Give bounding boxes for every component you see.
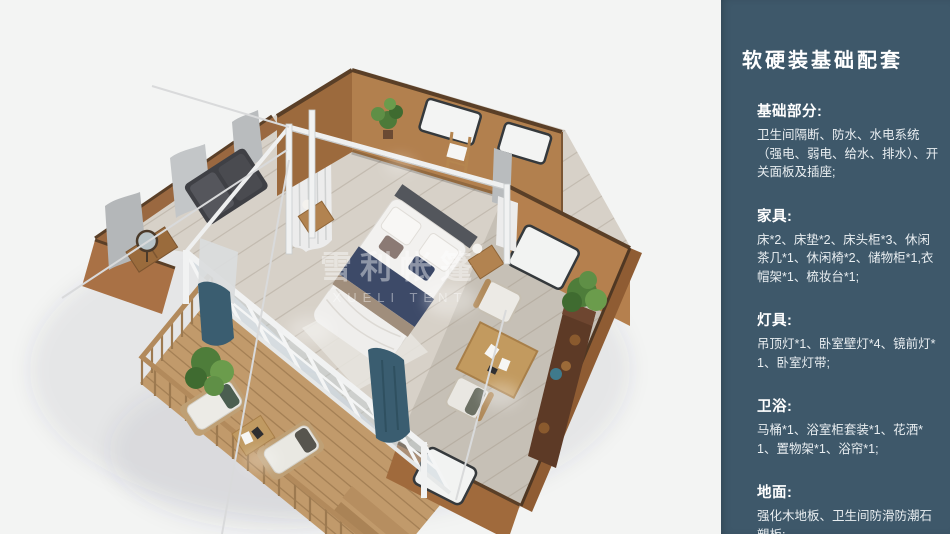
section-heading: 地面: <box>757 481 939 502</box>
frame-post <box>286 124 292 254</box>
watermark-cn: 雪利帐篷 <box>320 249 480 285</box>
section-heading: 家具: <box>757 205 939 226</box>
frame-post <box>183 250 189 304</box>
floorplan-render-area: 雪利帐篷 XUELI TENT <box>0 0 722 534</box>
teal-curtain <box>198 282 234 346</box>
frame-post <box>504 184 510 264</box>
section-heading: 基础部分: <box>757 100 939 121</box>
watermark-en: XUELI TENT <box>333 290 468 305</box>
section-body: 卫生间隔断、防水、水电系统（强电、弱电、给水、排水）、开关面板及插座; <box>757 126 939 182</box>
section-body: 马桶*1、浴室柜套装*1、花洒*1、置物架*1、浴帘*1; <box>757 421 939 458</box>
section-lighting: 灯具: 吊顶灯*1、卧室壁灯*4、镜前灯*1、卧室灯带; <box>757 309 939 372</box>
watermark: 雪利帐篷 XUELI TENT <box>320 249 480 305</box>
section-body: 吊顶灯*1、卧室壁灯*4、镜前灯*1、卧室灯带; <box>757 335 939 372</box>
section-heading: 卫浴: <box>757 395 939 416</box>
section-flooring: 地面: 强化木地板、卫生间防滑防潮石塑板; <box>757 481 939 534</box>
floorplan-render: 雪利帐篷 XUELI TENT <box>0 0 722 534</box>
frame-post <box>421 442 427 498</box>
info-panel: 软硬装基础配套 基础部分: 卫生间隔断、防水、水电系统（强电、弱电、给水、排水）… <box>721 0 950 534</box>
section-basics: 基础部分: 卫生间隔断、防水、水电系统（强电、弱电、给水、排水）、开关面板及插座… <box>757 100 939 182</box>
teal-bowl <box>550 368 562 380</box>
section-body: 床*2、床垫*2、床头柜*3、休闲茶几*1、休闲椅*2、储物柜*1,衣帽架*1、… <box>757 231 939 287</box>
section-body: 强化木地板、卫生间防滑防潮石塑板; <box>757 507 939 534</box>
section-bathroom: 卫浴: 马桶*1、浴室柜套装*1、花洒*1、置物架*1、浴帘*1; <box>757 395 939 458</box>
section-furniture: 家具: 床*2、床垫*2、床头柜*3、休闲茶几*1、休闲椅*2、储物柜*1,衣帽… <box>757 205 939 287</box>
slide: 雪利帐篷 XUELI TENT 软硬装基础配套 基础部分: 卫生间隔断、防水、水… <box>0 0 950 534</box>
section-heading: 灯具: <box>757 309 939 330</box>
page-title: 软硬装基础配套 <box>742 44 928 73</box>
frame-post <box>309 110 315 238</box>
